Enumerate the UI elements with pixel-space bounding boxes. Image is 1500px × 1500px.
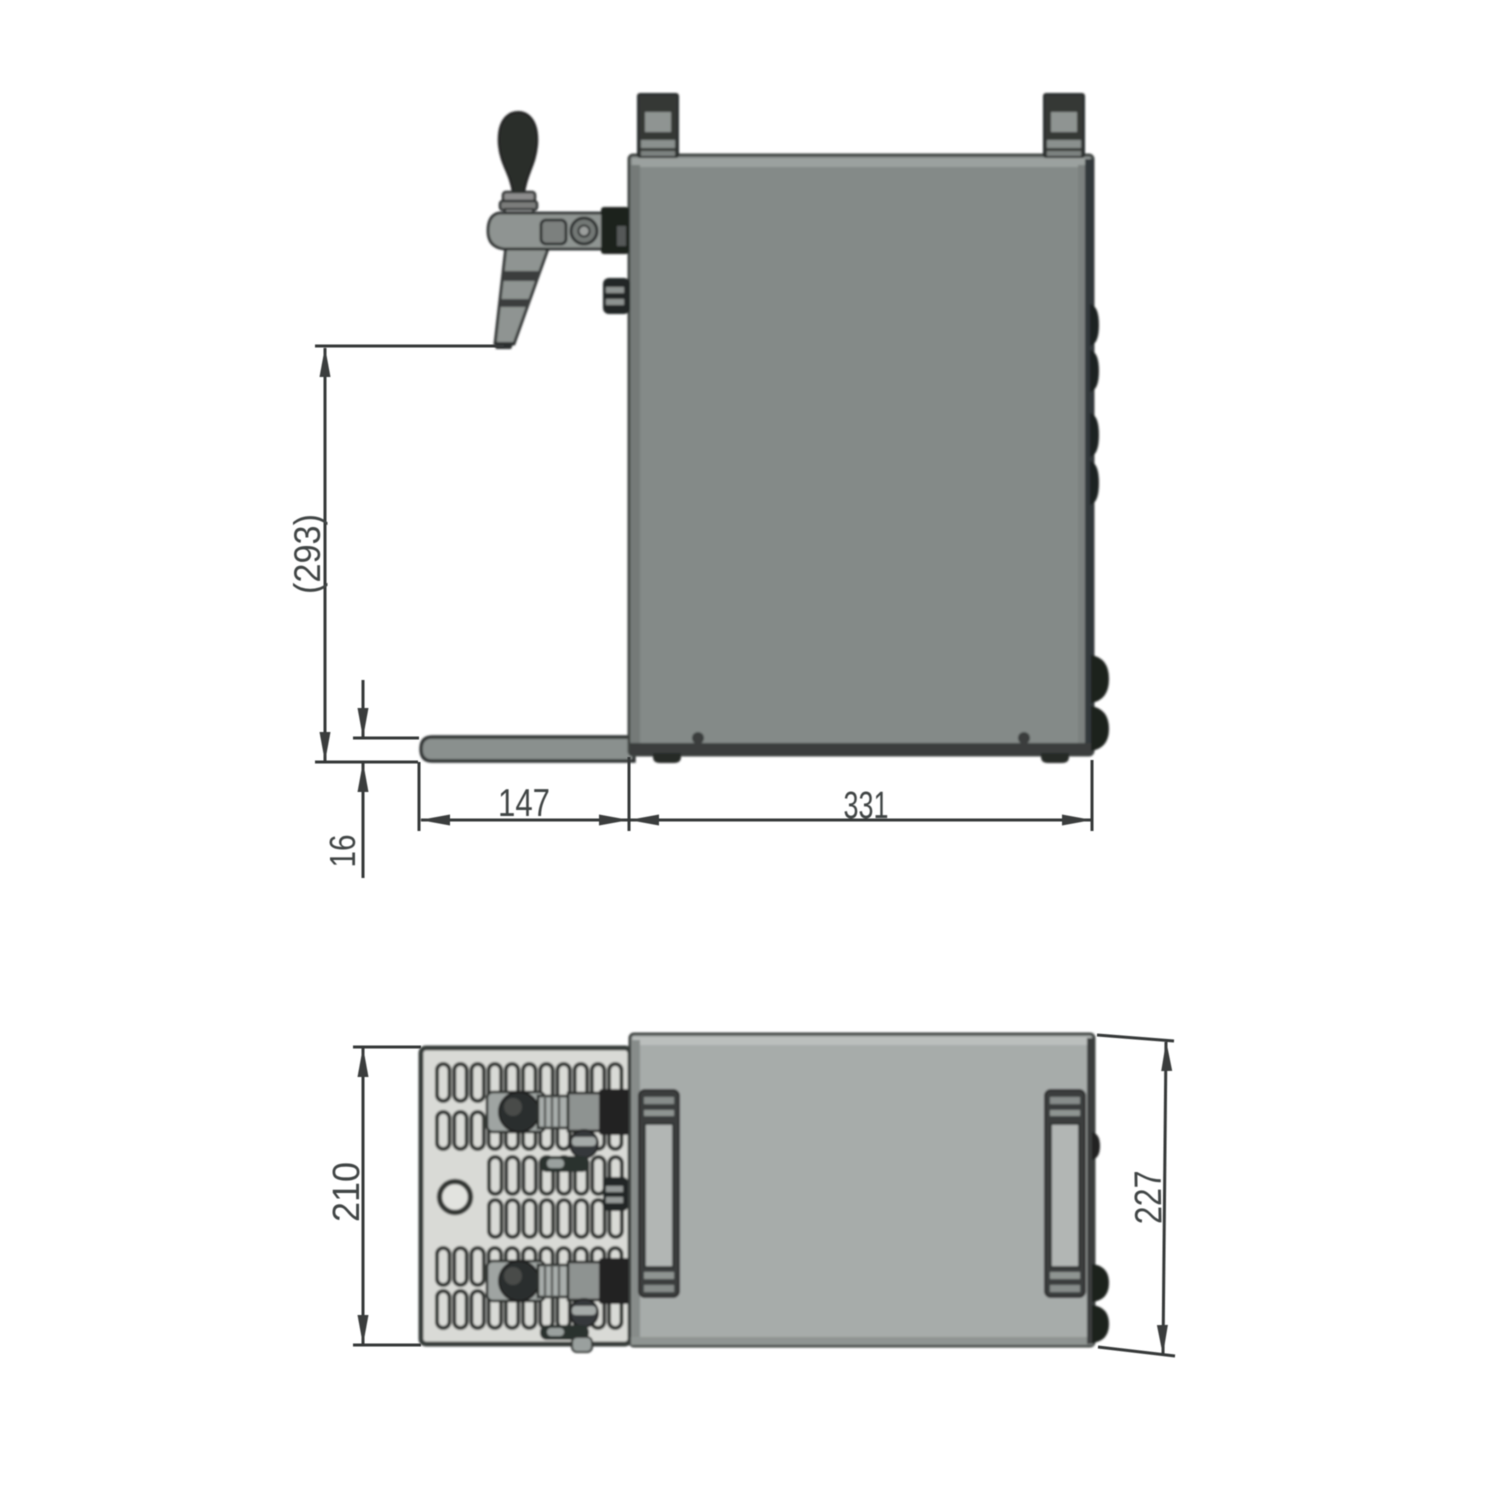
svg-text:147: 147 — [498, 782, 550, 825]
svg-text:16: 16 — [322, 835, 363, 868]
svg-text:(293): (293) — [287, 514, 328, 594]
svg-text:210: 210 — [326, 1162, 368, 1222]
svg-text:227: 227 — [1128, 1170, 1171, 1225]
svg-text:331: 331 — [844, 785, 889, 827]
